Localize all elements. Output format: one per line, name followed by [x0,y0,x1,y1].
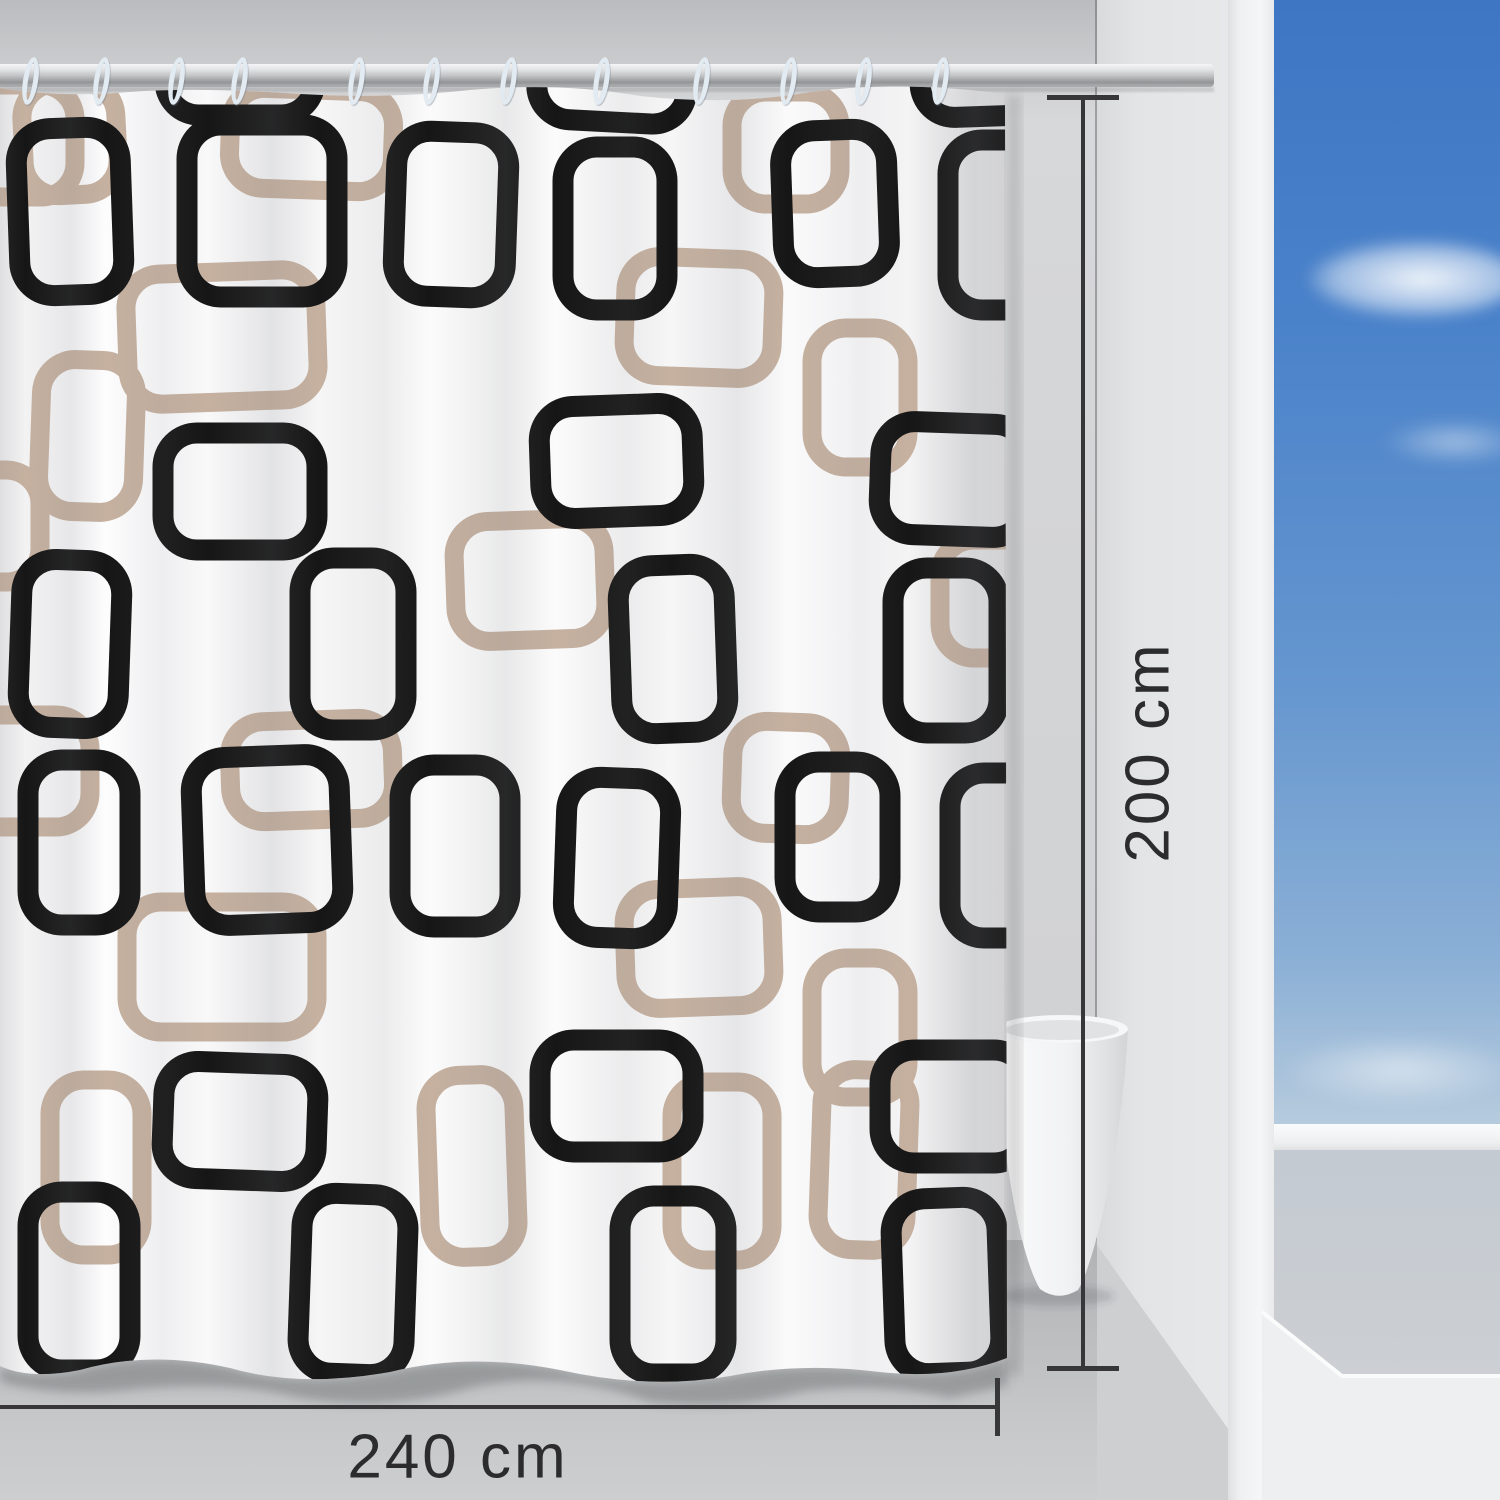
height-dimension-line [1081,97,1085,1369]
curtain-edge-shadow [1007,95,1021,1375]
width-dimension-line [0,1405,998,1409]
height-dimension-tick-top [1047,95,1119,100]
width-dimension-tick-end [995,1378,1000,1436]
width-dimension-label: 240 cm [347,1422,568,1493]
bathroom-product-scene: 200 cm 240 cm [0,0,1500,1500]
shower-curtain [0,0,1500,1500]
height-dimension-label: 200 cm [1113,641,1184,862]
height-dimension-tick-bottom [1047,1366,1119,1371]
curtain-folds [0,0,1010,1400]
